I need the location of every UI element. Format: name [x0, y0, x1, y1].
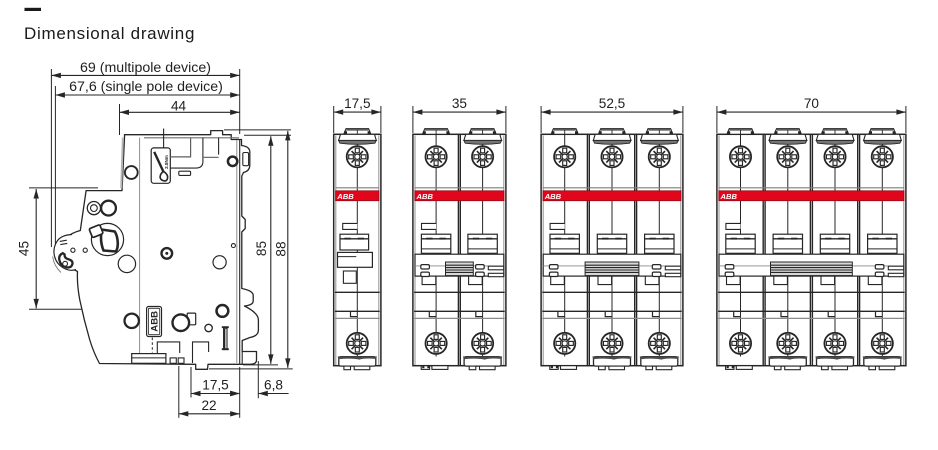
svg-text:2.8Nm: 2.8Nm [164, 155, 169, 169]
svg-text:85: 85 [254, 241, 269, 256]
svg-text:ABB: ABB [416, 192, 434, 201]
svg-text:ABB: ABB [720, 192, 738, 201]
svg-text:44: 44 [171, 98, 187, 113]
svg-text:45: 45 [17, 241, 32, 256]
svg-text:35: 35 [452, 96, 467, 111]
svg-text:52,5: 52,5 [599, 96, 625, 111]
svg-text:6,8: 6,8 [264, 378, 283, 393]
svg-text:17,5: 17,5 [202, 378, 228, 393]
svg-text:Dimensional drawing: Dimensional drawing [24, 24, 195, 43]
svg-text:88: 88 [273, 241, 288, 256]
svg-text:ABB: ABB [544, 192, 562, 201]
svg-text:67,6 (single pole device): 67,6 (single pole device) [69, 79, 223, 95]
svg-text:70: 70 [804, 96, 820, 111]
svg-text:ABB: ABB [336, 192, 354, 201]
svg-text:17,5: 17,5 [344, 96, 370, 111]
svg-text:22: 22 [201, 398, 216, 413]
svg-text:ABB: ABB [149, 311, 160, 332]
svg-text:69 (multipole device): 69 (multipole device) [80, 60, 211, 76]
